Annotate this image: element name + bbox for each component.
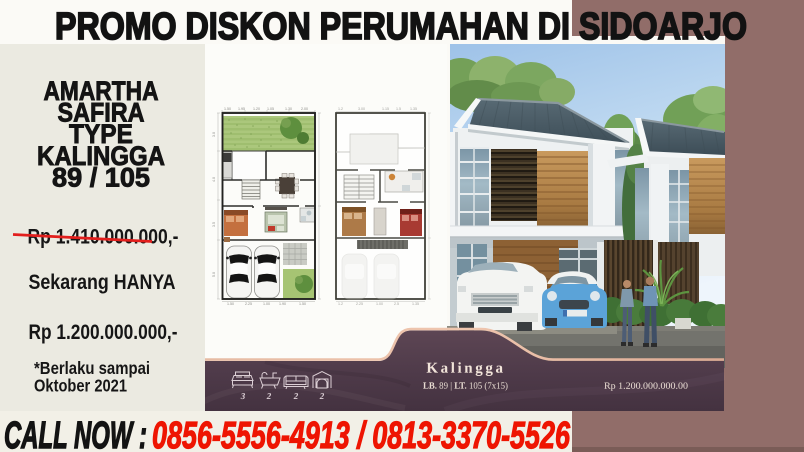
svg-text:LB. 89 | LT. 105 (7x15): LB. 89 | LT. 105 (7x15)	[423, 381, 508, 392]
svg-text:1.90: 1.90	[279, 302, 286, 306]
svg-text:4.0: 4.0	[212, 177, 216, 182]
svg-text:89 / 105: 89 / 105	[52, 163, 150, 193]
svg-text:Sekarang HANYA: Sekarang HANYA	[29, 271, 176, 294]
svg-text:3: 3	[240, 391, 246, 401]
svg-text:PROMO DISKON PERUMAHAN DI SIDO: PROMO DISKON PERUMAHAN DI SIDOARJO	[55, 6, 747, 46]
svg-text:2: 2	[319, 391, 325, 401]
svg-text:1.50: 1.50	[299, 302, 306, 306]
svg-text:2.25: 2.25	[356, 302, 363, 306]
svg-text:5.0: 5.0	[212, 272, 216, 277]
svg-text:1.95: 1.95	[238, 107, 245, 111]
svg-text:1.50: 1.50	[227, 302, 234, 306]
svg-text:3.5: 3.5	[212, 222, 216, 227]
svg-text:1.5: 1.5	[396, 107, 401, 111]
svg-text:1.50: 1.50	[224, 107, 231, 111]
svg-text:2: 2	[293, 391, 299, 401]
svg-text:1.00: 1.00	[263, 302, 270, 306]
svg-text:1.05: 1.05	[267, 107, 274, 111]
svg-text:Kalingga: Kalingga	[426, 361, 505, 377]
svg-text:1.20: 1.20	[253, 107, 260, 111]
svg-text:Rp 1.200.000.000.00: Rp 1.200.000.000.00	[604, 382, 688, 392]
svg-text:2: 2	[266, 391, 272, 401]
svg-text:0856-5556-4913 / 0813-3370-552: 0856-5556-4913 / 0813-3370-5526	[152, 415, 571, 452]
svg-text:Oktober 2021: Oktober 2021	[34, 376, 127, 396]
svg-text:1.15: 1.15	[382, 107, 389, 111]
svg-text:1.35: 1.35	[410, 107, 417, 111]
svg-text:1.00: 1.00	[376, 302, 383, 306]
svg-text:2.00: 2.00	[301, 107, 308, 111]
svg-text:Rp 1.200.000.000,-: Rp 1.200.000.000,-	[29, 320, 178, 344]
svg-text:1.30: 1.30	[285, 107, 292, 111]
svg-text:CALL NOW :: CALL NOW :	[4, 415, 147, 452]
svg-text:3.0: 3.0	[212, 132, 216, 137]
svg-text:1.2: 1.2	[338, 107, 343, 111]
svg-text:1.35: 1.35	[412, 302, 419, 306]
svg-text:2.25: 2.25	[245, 302, 252, 306]
svg-text:1.2: 1.2	[338, 302, 343, 306]
svg-text:3.00: 3.00	[358, 107, 365, 111]
svg-text:2.5: 2.5	[394, 302, 399, 306]
